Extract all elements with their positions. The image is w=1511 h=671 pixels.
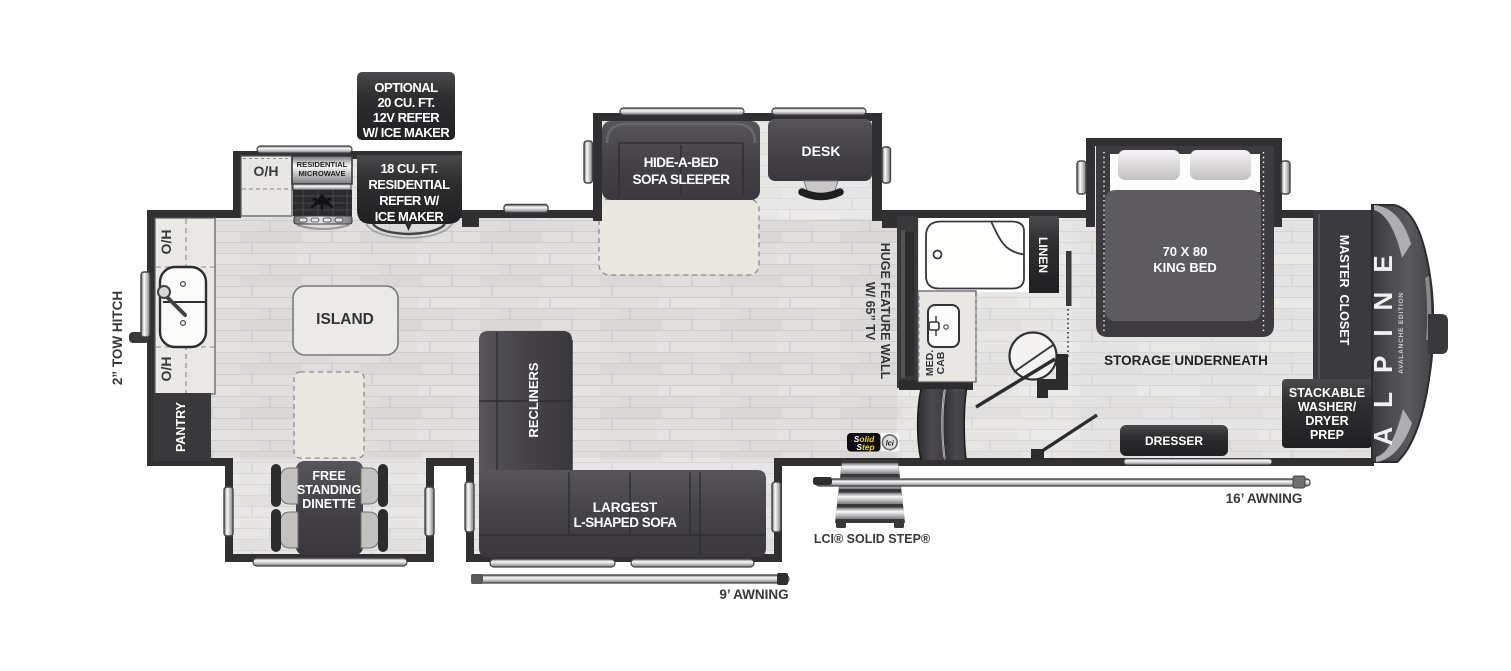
svg-text:OPTIONAL: OPTIONAL [374, 80, 438, 95]
svg-text:KING BED: KING BED [1153, 260, 1217, 275]
svg-text:STORAGE UNDERNEATH: STORAGE UNDERNEATH [1104, 353, 1268, 368]
svg-text:LARGEST: LARGEST [593, 500, 658, 515]
svg-text:HIDE-A-BED: HIDE-A-BED [644, 155, 719, 170]
svg-text:HUGE FEATURE WALL: HUGE FEATURE WALL [878, 243, 892, 380]
svg-text:W/ 65” TV: W/ 65” TV [863, 282, 877, 341]
svg-text:Step: Step [856, 442, 874, 452]
svg-text:SOFA SLEEPER: SOFA SLEEPER [632, 172, 730, 187]
svg-text:FREE: FREE [312, 469, 345, 483]
svg-text:16’ AWNING: 16’ AWNING [1226, 491, 1303, 506]
svg-text:MICROWAVE: MICROWAVE [298, 169, 345, 178]
svg-text:L-SHAPED SOFA: L-SHAPED SOFA [573, 515, 677, 530]
svg-text:DRYER: DRYER [1305, 414, 1348, 428]
svg-text:ALPINE: ALPINE [1368, 236, 1398, 445]
svg-text:REFER W/: REFER W/ [379, 193, 439, 208]
svg-text:9’ AWNING: 9’ AWNING [719, 587, 788, 602]
svg-text:RECLINERS: RECLINERS [526, 362, 541, 437]
svg-text:DESK: DESK [802, 143, 841, 159]
svg-text:STANDING: STANDING [297, 483, 361, 497]
svg-text:STACKABLE: STACKABLE [1289, 386, 1365, 400]
svg-text:LINEN: LINEN [1036, 237, 1050, 273]
svg-text:RESIDENTIAL: RESIDENTIAL [297, 160, 348, 169]
svg-text:CAB: CAB [935, 351, 947, 374]
svg-text:O/H: O/H [158, 230, 174, 255]
svg-text:W/ ICE MAKER: W/ ICE MAKER [363, 125, 451, 140]
svg-text:20 CU. FT.: 20 CU. FT. [377, 95, 434, 110]
svg-text:MASTER CLOSET: MASTER CLOSET [1337, 235, 1351, 346]
svg-text:RESIDENTIAL: RESIDENTIAL [368, 177, 450, 192]
svg-text:12V REFER: 12V REFER [373, 110, 440, 125]
svg-text:O/H: O/H [158, 357, 174, 382]
svg-text:DINETTE: DINETTE [302, 497, 355, 511]
svg-text:DRESSER: DRESSER [1145, 434, 1203, 448]
svg-text:LCI® SOLID STEP®: LCI® SOLID STEP® [814, 532, 931, 546]
svg-text:ISLAND: ISLAND [316, 311, 374, 328]
svg-text:18 CU. FT.: 18 CU. FT. [380, 161, 437, 176]
svg-text:PREP: PREP [1310, 428, 1344, 442]
svg-text:O/H: O/H [254, 163, 279, 179]
svg-text:70 X 80: 70 X 80 [1163, 244, 1208, 259]
svg-text:2” TOW HITCH: 2” TOW HITCH [110, 291, 125, 385]
svg-text:lci: lci [886, 439, 895, 448]
svg-text:ICE MAKER: ICE MAKER [375, 209, 445, 224]
svg-text:AVALANCHE EDITION: AVALANCHE EDITION [1398, 292, 1405, 374]
svg-text:WASHER/: WASHER/ [1298, 400, 1357, 414]
svg-text:PANTRY: PANTRY [174, 401, 188, 452]
